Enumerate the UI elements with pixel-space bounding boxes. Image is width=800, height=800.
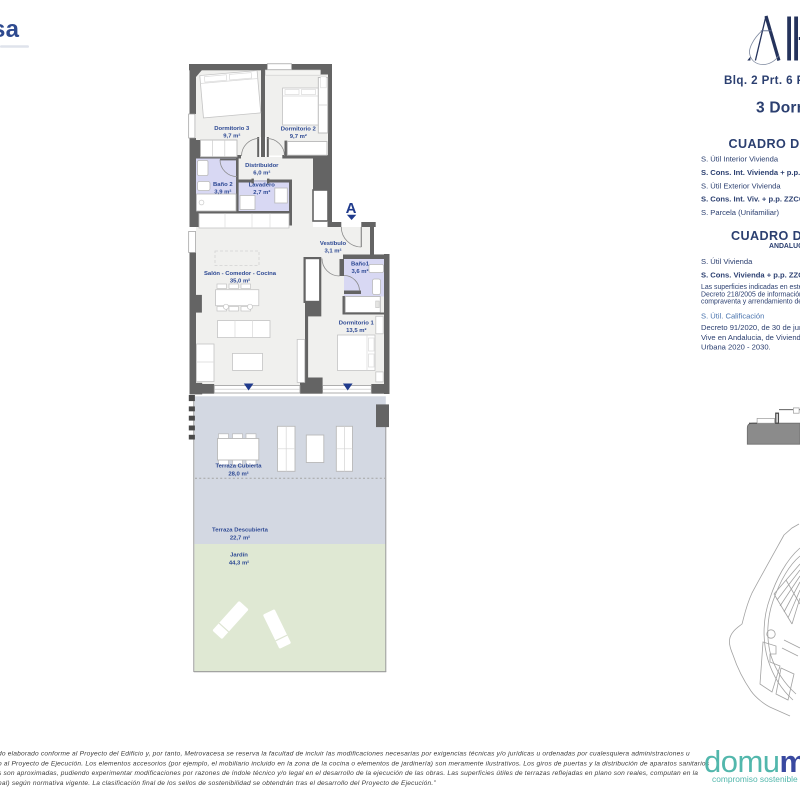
svg-text:Dormitorio 3: Dormitorio 3	[214, 126, 250, 132]
svg-text:2,7 m²: 2,7 m²	[253, 189, 270, 196]
svg-text:compraventa y arrendamiento de: compraventa y arrendamiento de viviendas…	[701, 299, 800, 306]
svg-text:13,5 m²: 13,5 m²	[346, 327, 366, 334]
svg-text:do elaborado conforme al Proye: do elaborado conforme al Proyecto del Ed…	[0, 751, 690, 758]
svg-text:Distribuidor: Distribuidor	[245, 163, 279, 169]
svg-text:9,7 m²: 9,7 m²	[223, 132, 240, 139]
svg-text:S. Útil Exterior Vivienda: S. Útil Exterior Vivienda	[701, 181, 781, 190]
svg-text:S. Cons. Int. Vivienda + p.p.: S. Cons. Int. Vivienda + p.p. ZZCC	[701, 168, 800, 177]
svg-text:3,9 m²: 3,9 m²	[214, 189, 231, 196]
svg-text:S. Útil. Calificación: S. Útil. Calificación	[701, 312, 764, 321]
svg-text:3 Dormitorios: 3 Dormitorios	[756, 100, 800, 117]
svg-text:S. Cons. Vivienda + p.p. ZZCC: S. Cons. Vivienda + p.p. ZZCC	[701, 271, 800, 280]
svg-text:9,7 m²: 9,7 m²	[290, 133, 307, 140]
svg-text:Jardín: Jardín	[230, 553, 248, 559]
svg-text:S. Útil Interior Vivienda: S. Útil Interior Vivienda	[701, 155, 779, 164]
svg-text:CUADRO DE SUPERFICIES: CUADRO DE SUPERFICIES	[731, 229, 800, 243]
svg-text:S. Parcela (Unifamiliar): S. Parcela (Unifamiliar)	[701, 208, 780, 217]
svg-text:Terraza Cubierta: Terraza Cubierta	[215, 464, 262, 470]
svg-text:Baño 2: Baño 2	[213, 182, 233, 188]
svg-text:Vive en Andalucia, de Vivienda: Vive en Andalucia, de Vivienda y Rehabil…	[701, 333, 800, 342]
svg-text:Dormitorio 1: Dormitorio 1	[339, 321, 375, 327]
svg-text:Blq. 2 Prt. 6 Planta: Blq. 2 Prt. 6 Planta	[724, 74, 800, 87]
svg-text:Las superficies indicadas en e: Las superficies indicadas en este plano …	[701, 284, 800, 291]
svg-text:compromiso sostenible: compromiso sostenible	[712, 774, 798, 784]
svg-text:ANDALUCÍA DECRETO: ANDALUCÍA DECRETO	[769, 241, 800, 250]
svg-text:CUADRO DE SUPERFICIES: CUADRO DE SUPERFICIES	[729, 137, 800, 151]
svg-text:44,3 m²: 44,3 m²	[229, 560, 249, 567]
svg-text:Vestíbulo: Vestíbulo	[320, 241, 347, 247]
svg-text:Dormitorio 2: Dormitorio 2	[281, 126, 317, 132]
svg-text:o al Proyecto de Ejecución. Lo: o al Proyecto de Ejecución. Los elemento…	[0, 760, 710, 767]
svg-text:Urbana 2020 - 2030.: Urbana 2020 - 2030.	[701, 342, 771, 351]
svg-text:sa: sa	[0, 16, 20, 43]
svg-text:s son aproximadas, pudiendo ex: s son aproximadas, pudiendo experimentar…	[0, 770, 698, 777]
svg-text:Lavadero: Lavadero	[249, 183, 276, 189]
svg-text:S. Útil Vivienda: S. Útil Vivienda	[701, 257, 753, 266]
svg-text:nal) según normativa vigente.: nal) según normativa vigente. La clasifi…	[0, 780, 436, 787]
svg-text:28,0 m²: 28,0 m²	[228, 471, 248, 478]
svg-text:6,0 m²: 6,0 m²	[253, 170, 270, 177]
svg-text:Terraza Descubierta: Terraza Descubierta	[212, 528, 269, 534]
svg-text:3,6 m²: 3,6 m²	[351, 268, 368, 275]
svg-text:Salón - Comedor - Cocina: Salón - Comedor - Cocina	[204, 271, 277, 277]
svg-text:22,7 m²: 22,7 m²	[230, 535, 250, 542]
svg-text:35,0 m²: 35,0 m²	[230, 278, 250, 285]
svg-text:3,1 m²: 3,1 m²	[324, 248, 341, 255]
svg-text:Decreto 91/2020, de 30 de juni: Decreto 91/2020, de 30 de junio, del Pla…	[701, 323, 800, 332]
svg-text:Baño1: Baño1	[351, 261, 370, 267]
svg-text:A: A	[346, 200, 357, 217]
svg-text:Decreto 218/2005 de informació: Decreto 218/2005 de información al consu…	[701, 291, 800, 298]
svg-text:S. Cons. Int. Viv. + p.p. ZZCC: S. Cons. Int. Viv. + p.p. ZZCC y Ext.	[701, 195, 800, 204]
